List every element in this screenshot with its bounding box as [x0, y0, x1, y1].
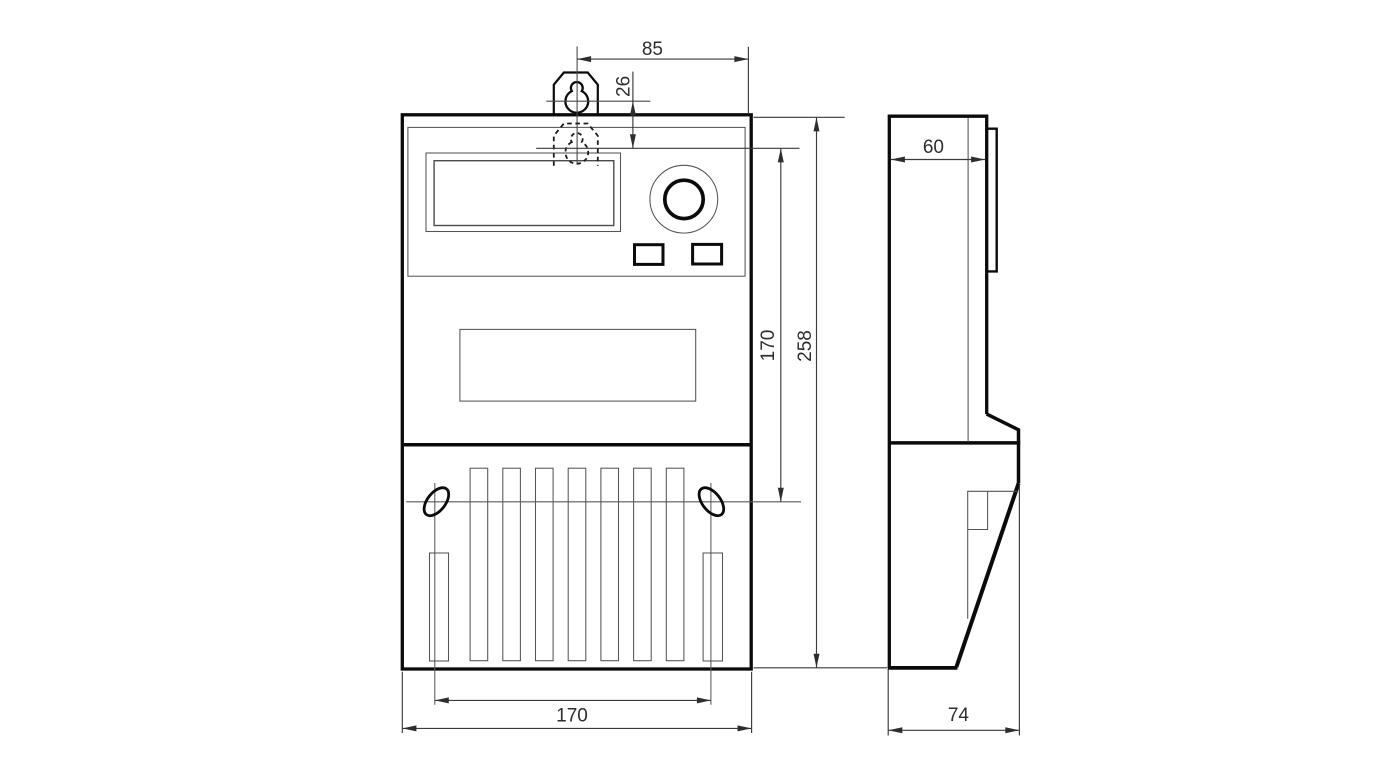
- svg-text:170: 170: [758, 330, 779, 362]
- svg-text:60: 60: [923, 137, 944, 158]
- svg-text:74: 74: [948, 705, 970, 726]
- svg-text:170: 170: [556, 705, 588, 726]
- svg-text:258: 258: [795, 330, 816, 362]
- svg-text:85: 85: [642, 39, 663, 60]
- svg-text:26: 26: [613, 76, 634, 97]
